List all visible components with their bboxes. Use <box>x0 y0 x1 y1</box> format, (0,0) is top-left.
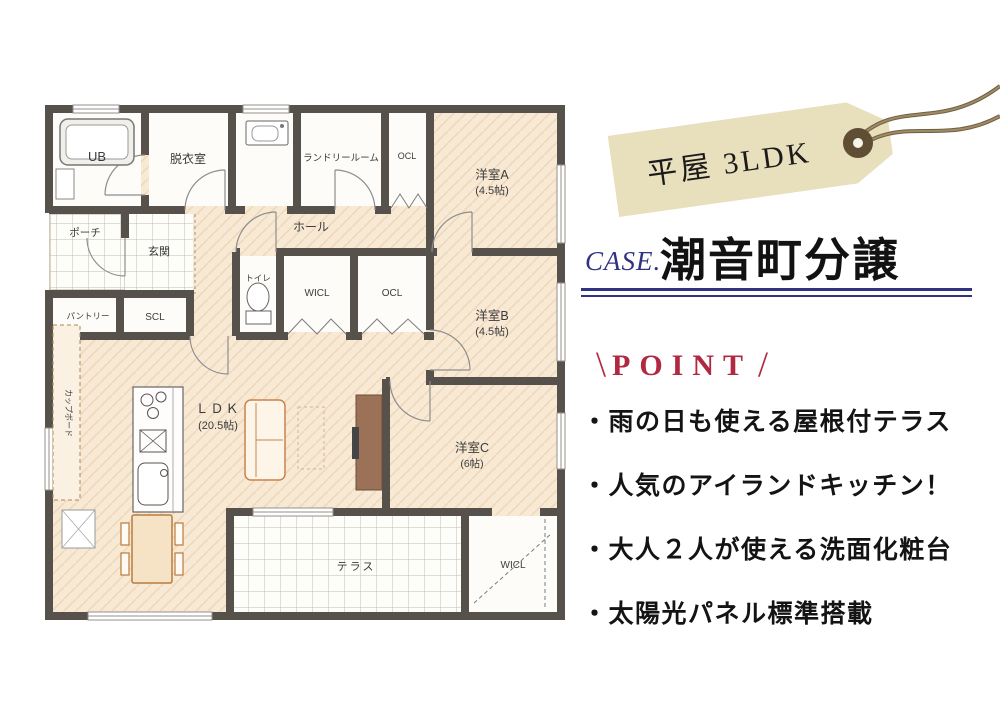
toilet-icon <box>246 283 271 324</box>
point-slash-right-icon: / <box>758 343 768 385</box>
title-underline-thick <box>581 288 972 291</box>
floorplan: UB 脱衣室 ランドリールーム OCL 洋室A (4.5帖) ホール ポーチ 玄… <box>40 95 575 630</box>
label-ldk-size: (20.5帖) <box>198 419 238 432</box>
tag-string-icon <box>828 78 1000 173</box>
tag-label: 平屋 3LDK <box>610 127 813 198</box>
label-room-a-size: (4.5帖) <box>475 184 509 197</box>
label-room-b-size: (4.5帖) <box>475 325 509 338</box>
point-item: ・大人２人が使える洗面化粧台 <box>582 530 992 566</box>
label-hall: ホール <box>293 220 329 234</box>
tv-board-icon <box>352 395 382 490</box>
washbasin-icon <box>246 121 288 145</box>
label-room-b: 洋室B <box>475 308 508 323</box>
floor-hatch-box-icon <box>62 510 95 548</box>
label-wic-bottom: WICL <box>501 560 526 571</box>
point-header: \ POINT / <box>596 345 768 387</box>
sofa-icon <box>245 400 285 480</box>
point-list: ・雨の日も使える屋根付テラス ・人気のアイランドキッチン！ ・大人２人が使える洗… <box>582 402 992 658</box>
label-terrace: テラス <box>337 561 376 573</box>
label-porch: ポーチ <box>69 227 101 239</box>
label-ub: UB <box>88 149 106 164</box>
label-toilet: トイレ <box>245 273 271 283</box>
label-dressing: 脱衣室 <box>170 151 206 166</box>
label-room-c-size: (6帖) <box>460 457 483 470</box>
label-wic-mid: WICL <box>305 288 330 299</box>
label-closet-mid: OCL <box>382 288 403 299</box>
flyer-root: UB 脱衣室 ランドリールーム OCL 洋室A (4.5帖) ホール ポーチ 玄… <box>0 0 1000 714</box>
point-title: POINT <box>612 349 752 383</box>
label-room-c: 洋室C <box>455 440 489 455</box>
page-title: 潮音町分譲 <box>660 224 900 290</box>
label-entrance: 玄関 <box>148 244 170 258</box>
case-label: CASE. <box>585 246 661 277</box>
tag-hole-icon <box>843 128 873 158</box>
point-item: ・人気のアイランドキッチン！ <box>582 466 992 502</box>
label-cupboard: カップボード <box>64 389 73 437</box>
title-underline-thin <box>581 295 972 297</box>
kitchen-island-icon <box>133 387 183 512</box>
label-laundry: ランドリールーム <box>303 153 379 164</box>
label-ldk: ＬＤＫ <box>195 401 240 416</box>
point-slash-left-icon: \ <box>596 343 606 385</box>
label-room-a: 洋室A <box>475 167 509 182</box>
label-closet-top: OCL <box>398 151 417 161</box>
label-shoe-closet: SCL <box>145 312 165 323</box>
point-item: ・雨の日も使える屋根付テラス <box>582 402 992 438</box>
point-item: ・太陽光パネル標準搭載 <box>582 594 992 630</box>
label-pantry: パントリー <box>67 311 110 321</box>
porch-tiles <box>50 214 125 290</box>
